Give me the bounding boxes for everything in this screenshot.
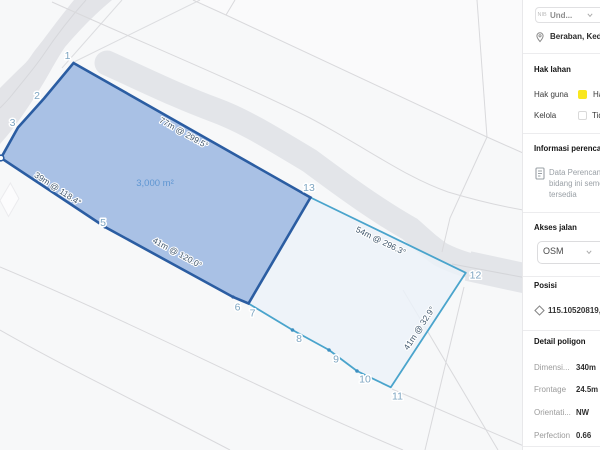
svg-text:7: 7	[250, 308, 256, 320]
svg-text:11: 11	[392, 391, 403, 403]
svg-text:10: 10	[359, 374, 371, 386]
svg-text:9: 9	[333, 354, 339, 366]
svg-text:3,000 m²: 3,000 m²	[136, 178, 174, 189]
svg-text:13: 13	[303, 182, 315, 194]
svg-text:5: 5	[100, 217, 106, 229]
svg-text:8: 8	[296, 333, 302, 345]
svg-text:1: 1	[65, 50, 71, 62]
svg-text:3: 3	[10, 117, 16, 129]
svg-text:12: 12	[470, 270, 482, 282]
svg-text:6: 6	[235, 302, 241, 314]
svg-text:2: 2	[34, 90, 40, 102]
